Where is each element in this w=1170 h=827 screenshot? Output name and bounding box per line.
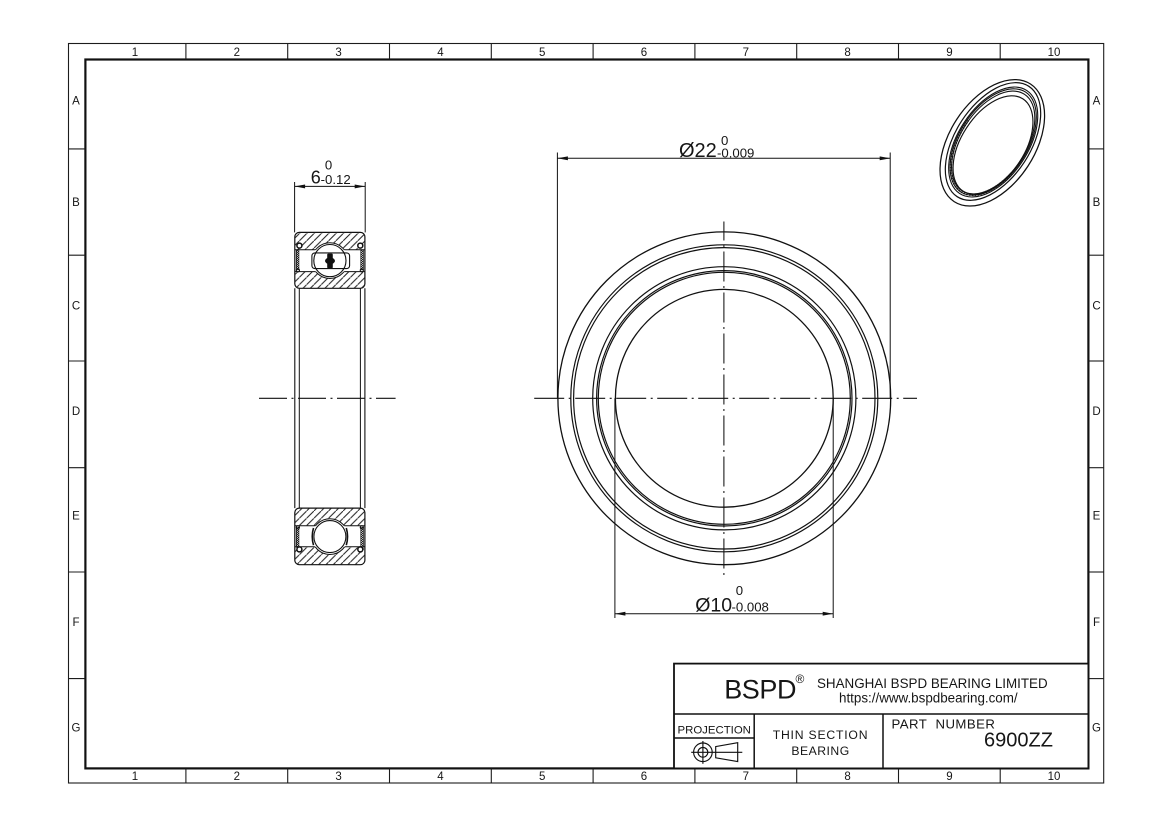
svg-text:4: 4 xyxy=(437,47,444,59)
svg-text:-0.009: -0.009 xyxy=(717,146,754,161)
svg-text:6: 6 xyxy=(311,168,321,188)
svg-text:5: 5 xyxy=(539,47,545,59)
svg-text:F: F xyxy=(72,617,79,629)
svg-text:D: D xyxy=(72,406,80,418)
svg-text:B: B xyxy=(72,197,80,209)
svg-text:PROJECTION: PROJECTION xyxy=(678,725,751,737)
svg-text:3: 3 xyxy=(335,47,341,59)
svg-text:4: 4 xyxy=(437,771,444,783)
svg-text:B: B xyxy=(1093,197,1101,209)
svg-text:®: ® xyxy=(796,672,805,686)
svg-text:A: A xyxy=(72,96,80,108)
svg-text:0: 0 xyxy=(736,583,743,598)
svg-text:-0.008: -0.008 xyxy=(732,599,769,614)
svg-text:C: C xyxy=(72,301,80,313)
svg-text:A: A xyxy=(1093,96,1101,108)
svg-text:2: 2 xyxy=(234,47,240,59)
svg-text:G: G xyxy=(1092,723,1101,735)
svg-text:0: 0 xyxy=(325,158,332,173)
svg-text:3: 3 xyxy=(335,771,341,783)
svg-text:9: 9 xyxy=(946,771,952,783)
svg-text:8: 8 xyxy=(844,771,850,783)
svg-text:6900ZZ: 6900ZZ xyxy=(984,730,1053,752)
svg-text:SHANGHAI BSPD BEARING LIMITED: SHANGHAI BSPD BEARING LIMITED xyxy=(817,676,1048,691)
svg-text:F: F xyxy=(1093,617,1100,629)
svg-text:E: E xyxy=(72,511,80,523)
svg-text:1: 1 xyxy=(132,771,138,783)
svg-text:9: 9 xyxy=(946,47,952,59)
svg-text:PART NUMBER: PART NUMBER xyxy=(892,717,996,732)
svg-text:6: 6 xyxy=(641,47,647,59)
svg-text:7: 7 xyxy=(743,771,749,783)
svg-text:5: 5 xyxy=(539,771,545,783)
svg-text:6: 6 xyxy=(641,771,647,783)
svg-text:-0.12: -0.12 xyxy=(321,172,351,187)
svg-text:1: 1 xyxy=(132,47,138,59)
svg-text:THIN SECTION: THIN SECTION xyxy=(773,728,869,742)
svg-text:10: 10 xyxy=(1048,771,1061,783)
svg-text:D: D xyxy=(1092,406,1100,418)
svg-text:10: 10 xyxy=(1048,47,1061,59)
svg-text:G: G xyxy=(72,723,81,735)
svg-text:C: C xyxy=(1092,301,1100,313)
svg-text:https://www.bspdbearing.com/: https://www.bspdbearing.com/ xyxy=(839,691,1018,706)
svg-text:BEARING: BEARING xyxy=(791,744,849,758)
svg-text:8: 8 xyxy=(844,47,850,59)
svg-text:2: 2 xyxy=(234,771,240,783)
svg-text:BSPD: BSPD xyxy=(724,675,796,705)
svg-text:E: E xyxy=(1093,511,1101,523)
svg-text:Ø10: Ø10 xyxy=(695,594,732,616)
svg-text:7: 7 xyxy=(743,47,749,59)
svg-text:Ø22: Ø22 xyxy=(679,140,717,162)
